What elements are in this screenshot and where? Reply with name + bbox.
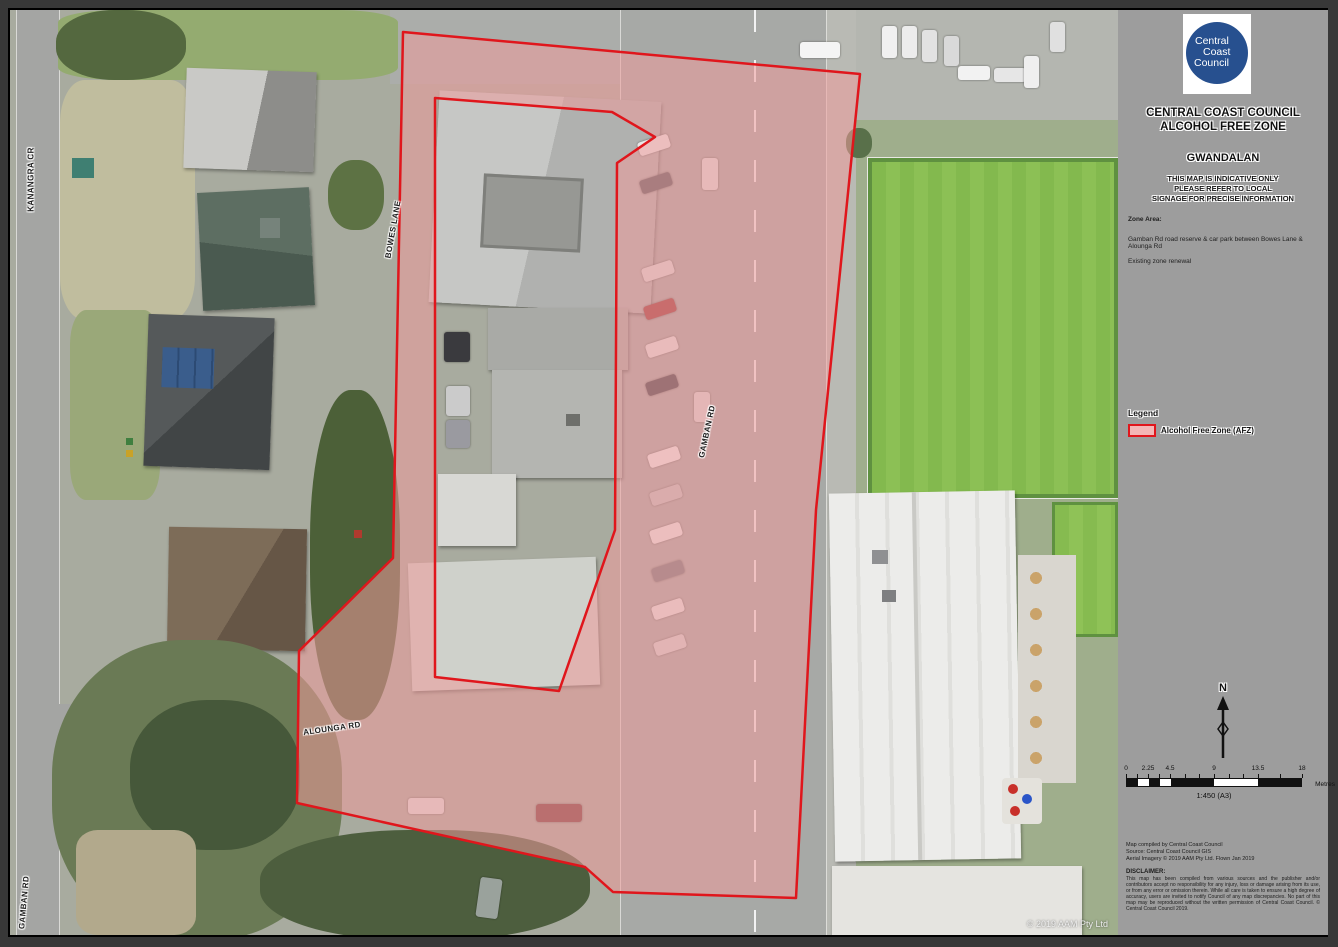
disclaimer-heading: DISCLAIMER: [1126, 869, 1320, 876]
credit-line: Map compiled by Central Coast Council [1126, 842, 1320, 849]
zone-info-label: Zone Area: [1128, 216, 1320, 223]
map-note: THIS MAP IS INDICATIVE ONLY PLEASE REFER… [1118, 174, 1328, 204]
logo-line: Council [1186, 58, 1248, 69]
street-label: KANANGRA CR [27, 135, 36, 225]
credit-line: Source: Central Coast Council GIS [1126, 849, 1320, 856]
zone-info-description: Gamban Rd road reserve & car park betwee… [1128, 236, 1320, 250]
afz-legend-label: Alcohol Free Zone (AFZ) [1161, 426, 1254, 435]
scale-bar-segments: Metres [1126, 778, 1302, 787]
scale-tick-label: 2.25 [1142, 765, 1155, 772]
north-arrow-icon [1202, 694, 1244, 760]
map-location: GWANDALAN [1118, 152, 1328, 164]
scale-tick-label: 4.5 [1165, 765, 1174, 772]
scale-tick-label: 9 [1212, 765, 1216, 772]
map-sheet-page: KANANGRA CR BOWES LANE GAMBAN RD ALOUNGA… [0, 0, 1338, 947]
afz-legend-swatch [1128, 424, 1156, 437]
map-title-line1: CENTRAL COAST COUNCIL [1118, 106, 1328, 120]
scale-tick-label: 18 [1298, 765, 1305, 772]
scale-text: 1:450 (A3) [1126, 791, 1302, 800]
disclaimer-body: This map has been compiled from various … [1126, 876, 1320, 912]
imagery-copyright: © 2019 AAM Pty Ltd [1027, 919, 1108, 929]
council-logo-circle: Central Coast Council [1186, 22, 1248, 84]
map-sheet: KANANGRA CR BOWES LANE GAMBAN RD ALOUNGA… [8, 8, 1328, 937]
zone-info-status: Existing zone renewal [1128, 258, 1320, 265]
credits-block: Map compiled by Central Coast Council So… [1126, 842, 1320, 912]
afz-zone-overlay [10, 10, 1118, 935]
map-sidebar: Central Coast Council CENTRAL COAST COUN… [1118, 10, 1328, 935]
credit-line: Aerial Imagery © 2019 AAM Pty Ltd. Flown… [1126, 856, 1320, 863]
map-note-line: SIGNAGE FOR PRECISE INFORMATION [1118, 194, 1328, 204]
legend-item: Alcohol Free Zone (AFZ) [1128, 424, 1254, 437]
map-title-line2: ALCOHOL FREE ZONE [1118, 120, 1328, 134]
map-note-line: PLEASE REFER TO LOCAL [1118, 184, 1328, 194]
aerial-map: KANANGRA CR BOWES LANE GAMBAN RD ALOUNGA… [10, 10, 1120, 935]
map-title: CENTRAL COAST COUNCIL ALCOHOL FREE ZONE [1118, 106, 1328, 134]
legend-heading: Legend [1128, 408, 1158, 418]
scale-unit: Metres [1315, 781, 1335, 788]
scale-bar: 0 2.25 4.5 9 13.5 18 Metres [1126, 765, 1302, 800]
scale-bar-labels: 0 2.25 4.5 9 13.5 18 [1126, 765, 1302, 774]
map-note-line: THIS MAP IS INDICATIVE ONLY [1118, 174, 1328, 184]
north-arrow: N [1202, 682, 1244, 765]
scale-tick-label: 0 [1124, 765, 1128, 772]
scale-tick-label: 13.5 [1252, 765, 1265, 772]
council-logo: Central Coast Council [1183, 14, 1251, 94]
afz-zone-polygon [297, 32, 860, 898]
north-label: N [1202, 682, 1244, 694]
